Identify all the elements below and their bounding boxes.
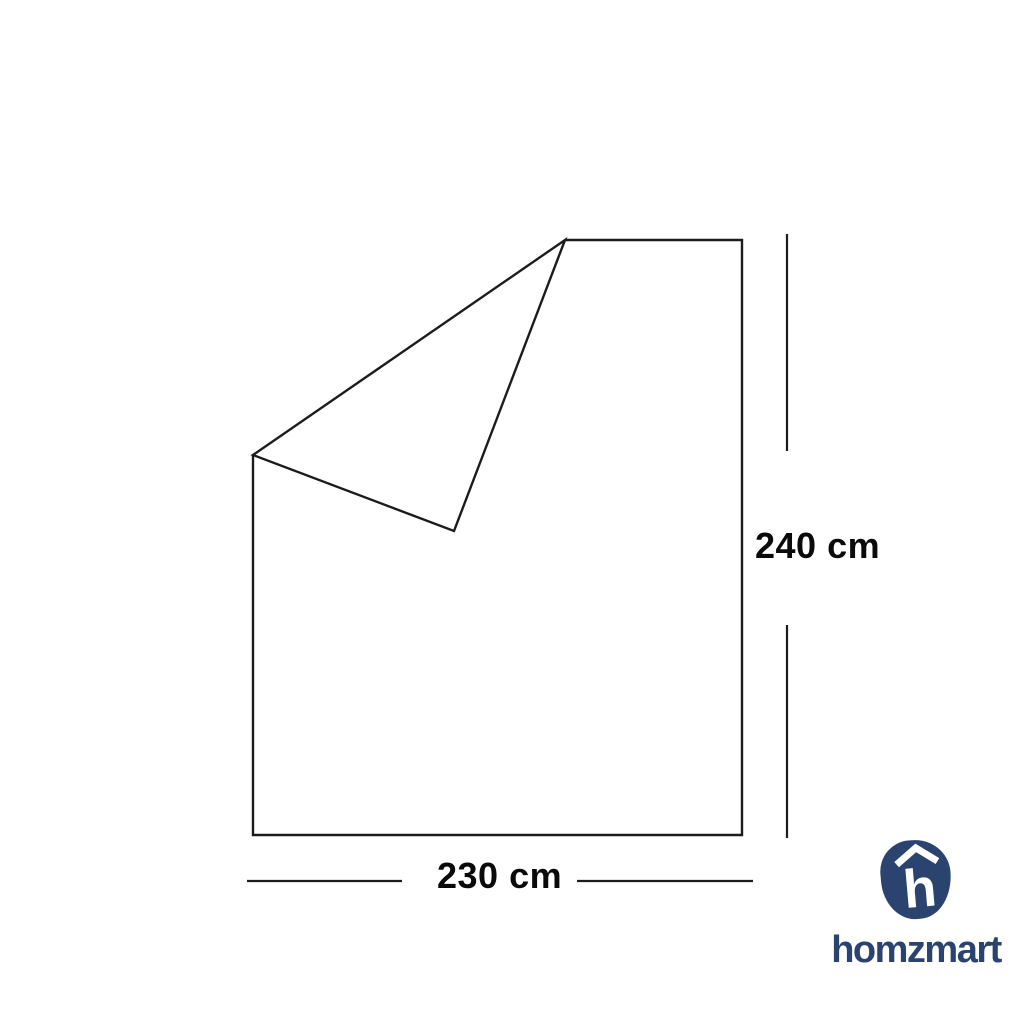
homzmart-pebble-h-icon: h: [878, 837, 955, 922]
height-dimension-label: 240 cm: [755, 528, 880, 564]
homzmart-logo: h homzmart: [820, 840, 1012, 969]
brand-wordmark: homzmart: [831, 931, 1001, 969]
logo-letter-h: h: [901, 857, 939, 920]
logo-glyphs: h: [878, 837, 955, 922]
product-dimension-image: 240 cm 230 cm h homzmart: [0, 0, 1024, 1024]
width-dimension-label: 230 cm: [437, 858, 562, 894]
